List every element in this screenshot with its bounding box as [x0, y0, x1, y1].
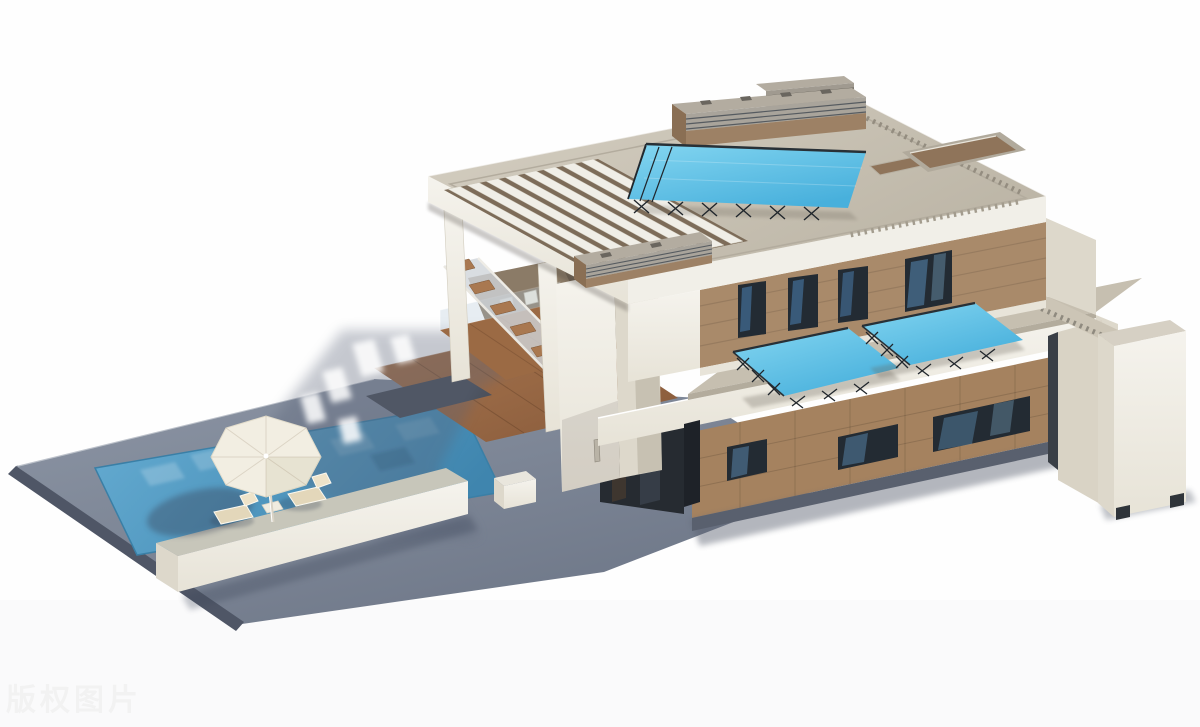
villa-illustration [0, 0, 1200, 727]
deck-bench [494, 471, 536, 509]
upper-wall-white [628, 290, 700, 382]
corner-door-frame [684, 420, 700, 507]
watermark: 版权图片 [6, 675, 142, 719]
right-pillar [1098, 320, 1196, 520]
render-canvas: 版权图片 [0, 0, 1200, 727]
ground-tint [0, 600, 1200, 727]
